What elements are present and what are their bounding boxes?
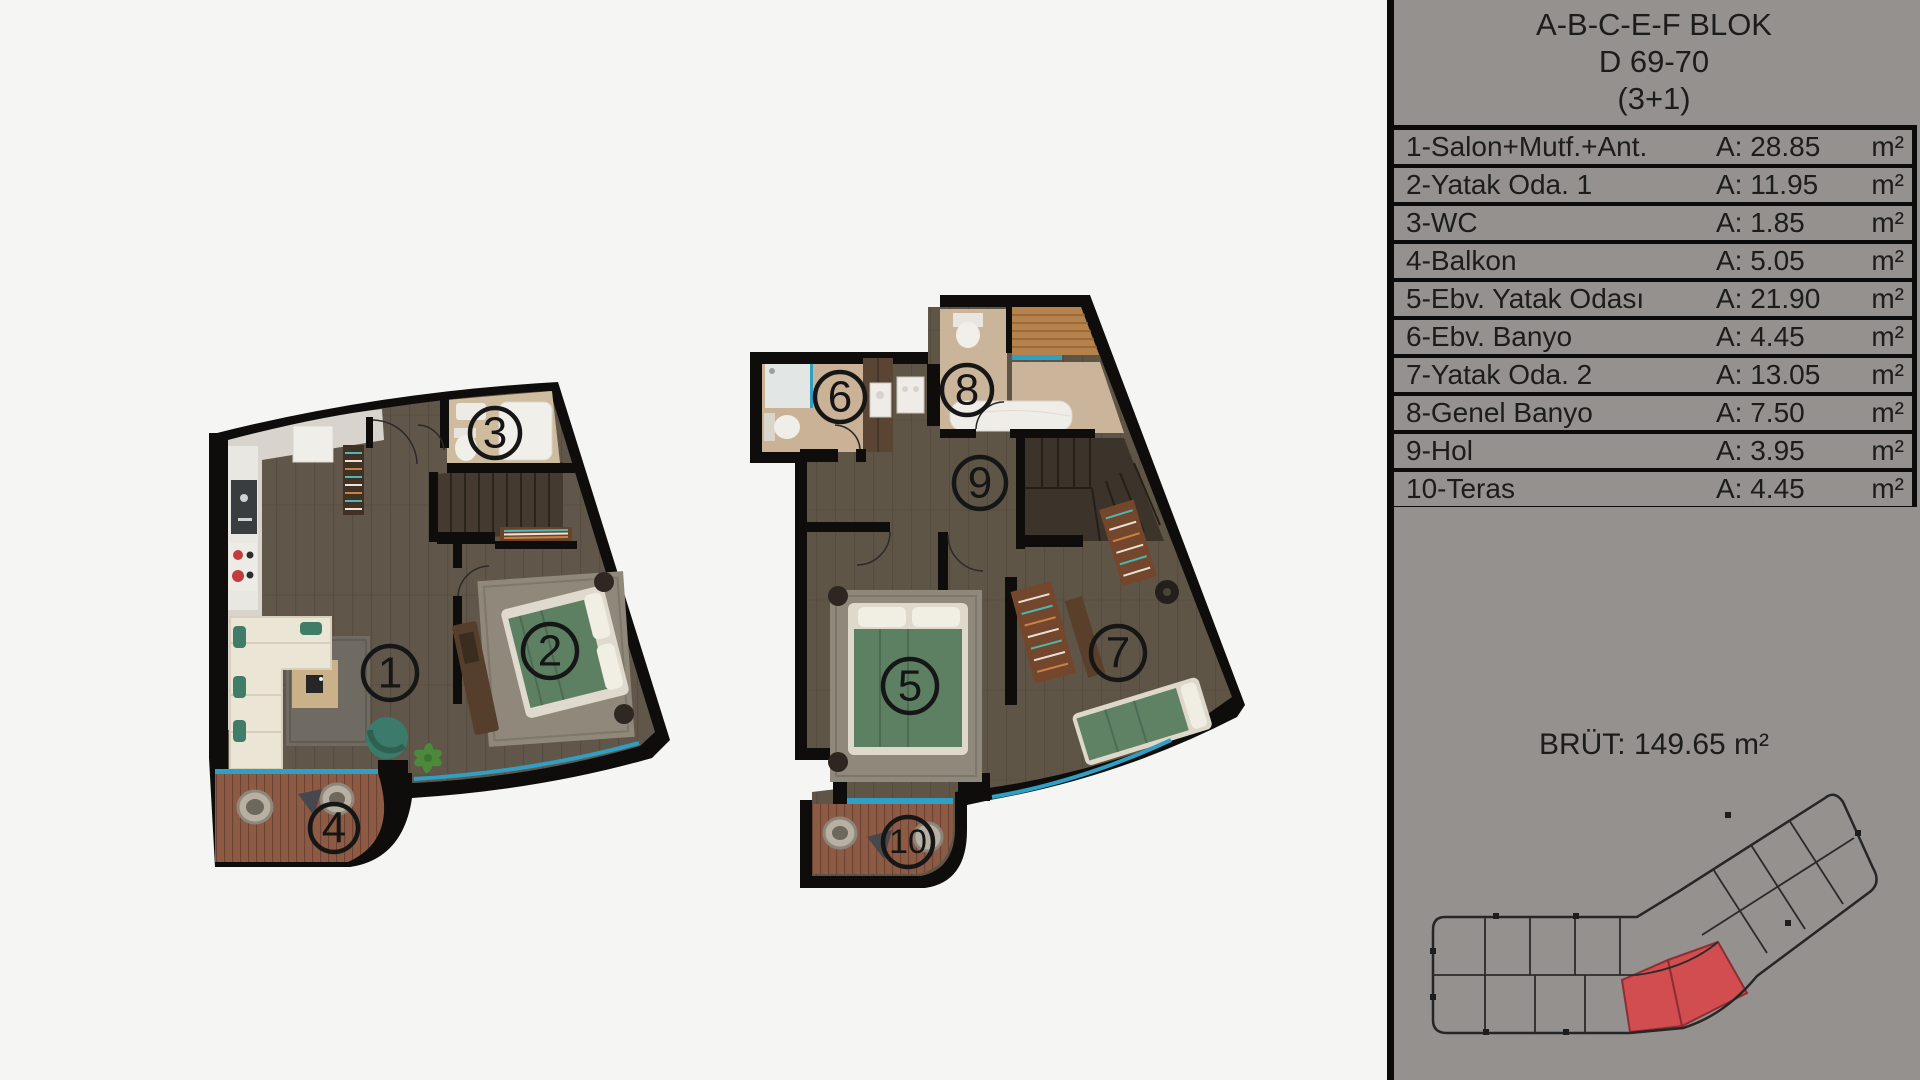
svg-text:6: 6	[828, 373, 852, 422]
area-unit: m²	[1871, 435, 1904, 467]
lower-floor-plan: 1 2 3 4	[200, 370, 680, 890]
room-area: A: 7.50	[1716, 397, 1805, 429]
svg-text:10: 10	[889, 823, 927, 861]
room-area: A: 3.95	[1716, 435, 1805, 467]
room-label: 10-Teras	[1394, 473, 1716, 505]
svg-text:7: 7	[1106, 629, 1130, 678]
table-row: 8-Genel Banyo A: 7.50m²	[1394, 396, 1912, 434]
room-area: A: 4.45	[1716, 321, 1805, 353]
svg-text:2: 2	[538, 627, 562, 676]
room-area: A: 13.05	[1716, 359, 1820, 391]
room-badge-10: 10	[883, 817, 933, 867]
floorplan-brochure: 1 2 3 4	[0, 0, 1920, 1080]
area-unit: m²	[1871, 283, 1904, 315]
area-unit: m²	[1871, 359, 1904, 391]
svg-text:1: 1	[378, 649, 402, 698]
area-unit: m²	[1871, 397, 1904, 429]
table-row: 10-Teras A: 4.45m²	[1394, 472, 1912, 506]
hall-shelf	[495, 527, 577, 549]
area-unit: m²	[1871, 473, 1904, 505]
table-row: 9-Hol A: 3.95m²	[1394, 434, 1912, 472]
upper-floor-plan: 5 6 7 8 9 10	[740, 285, 1260, 905]
svg-text:4: 4	[322, 804, 346, 853]
room-area: A: 21.90	[1716, 283, 1820, 315]
svg-text:5: 5	[898, 662, 922, 711]
room-label: 5-Ebv. Yatak Odası	[1394, 283, 1716, 315]
terrace-balkon	[215, 769, 384, 862]
table-row: 6-Ebv. Banyo A: 4.45m²	[1394, 320, 1912, 358]
svg-text:3: 3	[483, 409, 507, 458]
room-label: 6-Ebv. Banyo	[1394, 321, 1716, 353]
table-row: 5-Ebv. Yatak Odası A: 21.90m²	[1394, 282, 1912, 320]
room-label: 9-Hol	[1394, 435, 1716, 467]
svg-text:9: 9	[968, 459, 992, 508]
key-plan	[1432, 0, 1892, 250]
svg-text:8: 8	[955, 366, 979, 415]
highlighted-unit	[1668, 942, 1747, 1026]
room-area: A: 4.45	[1716, 473, 1805, 505]
info-panel: A-B-C-E-F BLOK D 69-70 (3+1) 1-Salon+Mut…	[1387, 0, 1920, 1080]
room-label: 8-Genel Banyo	[1394, 397, 1716, 429]
table-row: 7-Yatak Oda. 2 A: 13.05m²	[1394, 358, 1912, 396]
room-label: 7-Yatak Oda. 2	[1394, 359, 1716, 391]
bookshelf	[343, 445, 364, 515]
gross-area-label: BRÜT: 149.65 m²	[1394, 728, 1914, 762]
key-plan-drawing	[1425, 790, 1885, 1040]
area-unit: m²	[1871, 321, 1904, 353]
